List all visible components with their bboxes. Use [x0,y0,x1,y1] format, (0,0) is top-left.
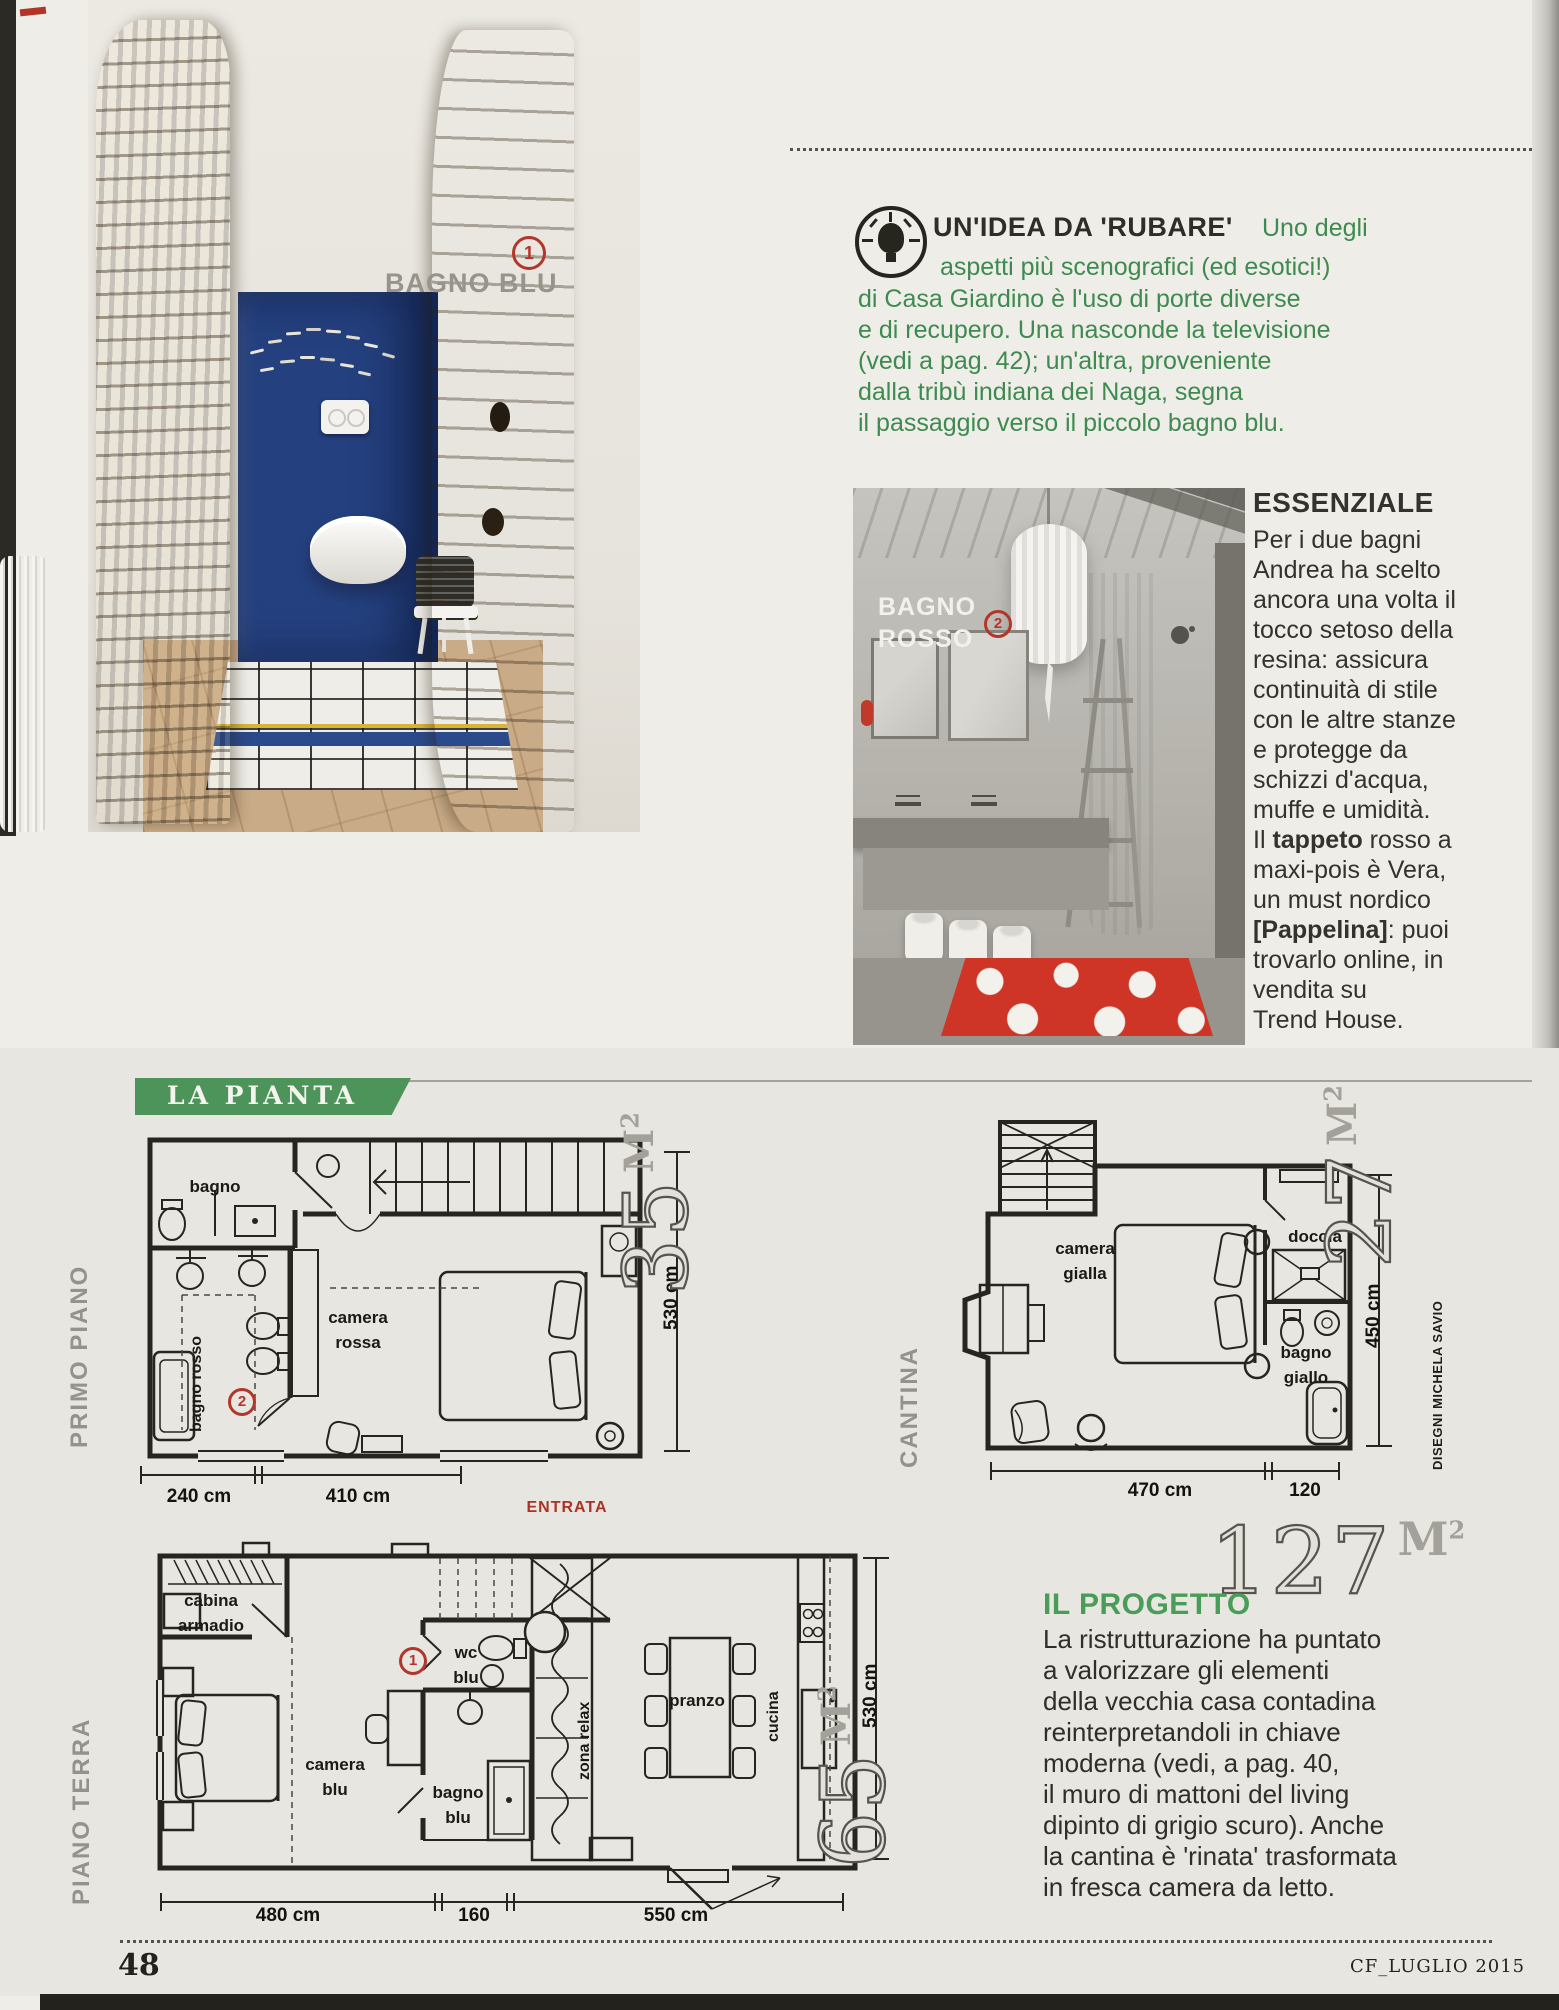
dim-tick [513,1893,515,1911]
lightbulb-icon [855,206,927,278]
room-label-bagno-giallo: bagnogiallo [1266,1340,1346,1390]
dim-label: 160 [444,1905,504,1927]
photo-bagno-rosso [853,488,1245,1045]
pianta-rule [400,1080,1532,1082]
fish-mark [346,335,360,340]
page-number: 48 [118,1948,160,1983]
fish-mark [320,357,335,361]
room-label-camera-rossa: camerarossa [318,1305,398,1355]
floor-label-primo-piano: PRIMO PIANO [66,1265,94,1448]
dim-tick [842,1893,844,1911]
plan-badge-1: 1 [399,1647,427,1675]
dim-label: 120 [1275,1480,1335,1502]
fish-mark [286,331,301,335]
tip-line: e di recupero. Una nasconde la televisio… [858,316,1331,345]
room-label-zona-relax: zona relax [576,1702,594,1780]
area-piano-terra: 65M2 [805,1685,903,1868]
toilet [310,516,406,584]
footer-issue: CF_LUGLIO 2015 [1350,1956,1525,1977]
faucet [895,802,921,806]
fish-mark [268,339,282,344]
plan-badge-2: 2 [228,1388,256,1416]
shower-head [1171,626,1189,644]
dim-label: 410 cm [318,1486,398,1508]
dim-tick [1338,1462,1340,1480]
room-label-pranzo: pranzo [657,1688,737,1713]
pianta-banner-label: LA PIANTA [167,1081,358,1110]
dim-label: 470 cm [1120,1480,1200,1502]
fish-mark [300,356,315,359]
illustrator-credit: DISEGNI MICHELA SAVIO [1430,1301,1446,1470]
fish-mark [260,367,274,372]
fish-mark [306,328,321,331]
faucet [971,802,997,806]
room-label-bagno-rosso: bagno rosso [188,1336,206,1432]
dim-tick [506,1893,508,1911]
dim-tick [664,1450,690,1452]
photo-bagno-blu [88,0,640,832]
area-primo-piano: 35M2 [608,1112,706,1295]
door-hole [482,508,504,536]
fish-mark [250,348,264,354]
fish-artwork [246,322,426,392]
photo-badge-1: 1 [512,236,546,270]
dim-line [140,1474,462,1476]
fish-mark [326,329,341,333]
fish-mark [340,363,354,368]
carved-door-right [432,30,574,832]
fish-mark [364,343,378,349]
dim-tick [990,1462,992,1480]
tip-line: il passaggio verso il piccolo bagno blu. [858,409,1285,438]
dim-line [990,1470,1340,1472]
interior [980,1122,1350,1450]
dim-tick [261,1466,263,1484]
pendant-tail [1043,662,1053,722]
vanity-top [853,818,1109,848]
dim-tick [140,1466,142,1484]
room-label-bagno-blu: bagnoblu [418,1780,498,1830]
dim-tick [254,1466,256,1484]
tip-line: (vedi a pag. 42); un'altra, proveniente [858,347,1271,376]
fish-mark [358,371,371,377]
footer-dotted-rule [120,1940,1492,1943]
essenziale-block: ESSENZIALE Per i due bagni Andrea ha sce… [1253,488,1545,1035]
floor-label-piano-terra: PIANO TERRA [68,1718,96,1905]
dashed-guides [292,1556,830,1868]
progetto-title: IL PROGETTO [1043,1588,1251,1622]
entrata-label: ENTRATA [512,1499,622,1517]
tip-title: UN'IDEA DA 'RUBARE' [933,212,1233,243]
room-label-camera-blu: camerablu [285,1752,385,1802]
scan-bottom-edge [40,1994,1559,2010]
tip-line: aspetti più scenografici (ed esotici!) [940,253,1330,282]
photo-blu-label: BAGNO BLU [385,268,558,299]
red-registration-mark [20,7,47,17]
dim-label: 450 cm [1364,1284,1384,1348]
room-label-wc-blu: wcblu [436,1640,496,1690]
shower-wall [1215,543,1245,983]
photo-rosso-label: BAGNO ROSSO [878,591,976,655]
vanity-base [863,848,1109,910]
fish-mark [280,359,295,363]
dim-tick [441,1893,443,1911]
white-pot [905,913,943,963]
dim-tick [160,1893,162,1911]
tip-line: Uno degli [1262,214,1368,243]
dim-tick [863,1557,889,1559]
room-label-camera-gialla: cameragialla [1040,1236,1130,1286]
dim-tick [434,1893,436,1911]
dim-label: 240 cm [159,1486,239,1508]
fish-mark [382,352,395,358]
pianta-banner: LA PIANTA [135,1078,411,1115]
walls [160,1556,855,1868]
door-hole [490,402,510,432]
dim-tick [1271,1462,1273,1480]
red-hook-item [861,700,873,726]
fringe-texture [0,556,48,832]
dim-label: 550 cm [636,1905,716,1927]
pendant-cord [1047,488,1050,528]
dim-tick [1264,1462,1266,1480]
dim-tick [1366,1445,1392,1447]
polka-rug [941,958,1213,1036]
magazine-page: 1 BAGNO BLU UN'IDEA DA 'RUBARE' Uno degl… [0,0,1559,2010]
photo-badge-2: 2 [984,610,1012,638]
flush-plate [321,400,369,434]
progetto-body: La ristrutturazione ha puntato a valoriz… [1043,1624,1483,1903]
essenziale-title: ESSENZIALE [1253,488,1545,518]
tip-line: di Casa Giardino è l'uso di porte divers… [858,285,1301,314]
room-label-cucina: cucina [765,1691,783,1742]
tip-line: dalla tribù indiana dei Naga, segna [858,378,1243,407]
dim-label: 480 cm [248,1905,328,1927]
dotted-rule-top [790,148,1532,151]
carved-door-left [96,20,230,824]
dim-line [160,1901,844,1903]
room-label-bagno: bagno [185,1174,245,1199]
dim-tick [460,1466,462,1484]
floor-label-cantina: CANTINA [896,1346,924,1468]
room-label-cabina-armadio: cabinaarmadio [161,1588,261,1638]
area-cantina: 27M2 [1311,1085,1409,1268]
